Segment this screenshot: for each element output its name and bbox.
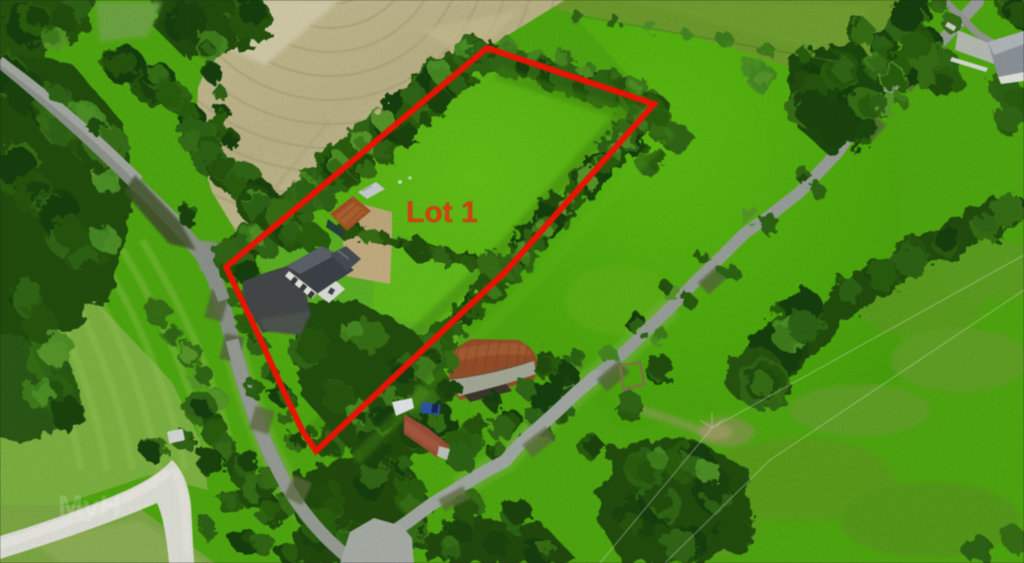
svg-text:Lot 1: Lot 1 (406, 196, 478, 229)
svg-text:MyH: MyH (58, 490, 121, 523)
